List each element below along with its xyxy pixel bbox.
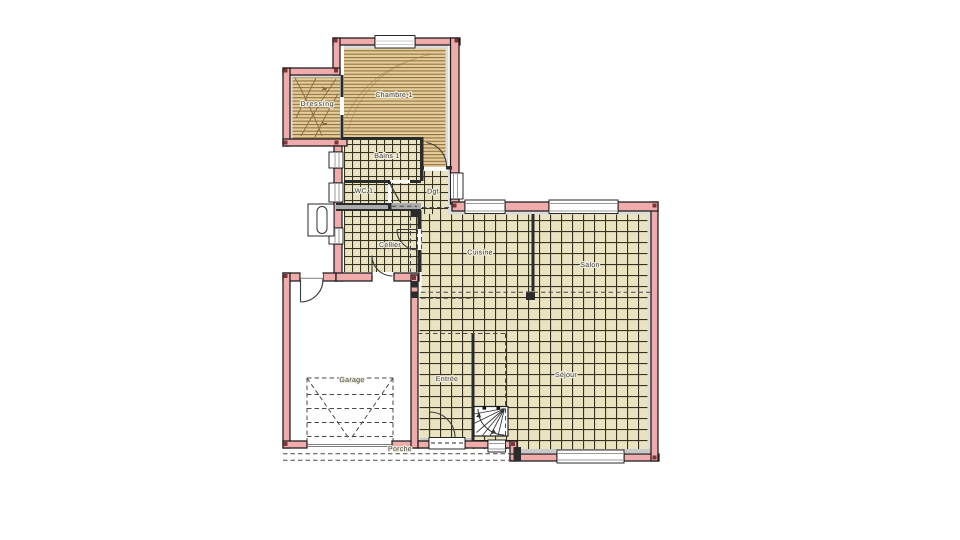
svg-text:Dgt: Dgt xyxy=(427,189,439,196)
svg-text:Cellier: Cellier xyxy=(379,241,401,249)
svg-text:Bains 1: Bains 1 xyxy=(374,152,399,160)
svg-text:WC 1: WC 1 xyxy=(355,188,374,195)
svg-text:Chambre 1: Chambre 1 xyxy=(375,91,412,99)
svg-text:Cuisine: Cuisine xyxy=(467,249,492,257)
svg-text:Séjour: Séjour xyxy=(555,371,577,379)
svg-text:Entrée: Entrée xyxy=(436,375,458,383)
svg-text:Salon: Salon xyxy=(580,261,599,269)
svg-text:Porche: Porche xyxy=(388,445,412,453)
svg-text:Dressing: Dressing xyxy=(300,100,334,108)
svg-text:Garage: Garage xyxy=(339,377,364,384)
